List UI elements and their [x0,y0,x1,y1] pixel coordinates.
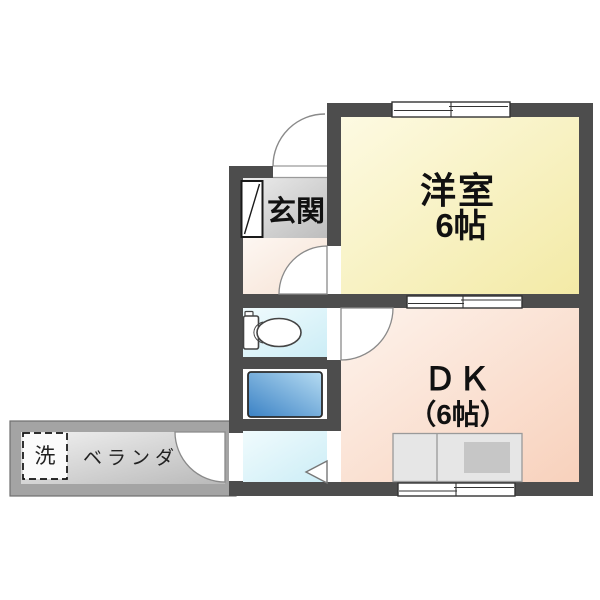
dk-label: ＤＫ [424,361,492,397]
veranda-label: ベランダ [83,447,179,469]
shoe-cabinet [242,181,263,237]
washing-machine-label: 洗 [35,445,56,468]
window-middle [407,296,522,308]
entrance-doorway [273,165,327,178]
entrance-label: 玄関 [267,194,325,228]
dk-size: （6帖） [408,398,508,430]
western-room-doorway [327,246,341,294]
wall-bath-washroom [229,419,341,431]
window-top [392,102,510,117]
kitchen-counter [393,434,522,482]
western-room-size: 6帖 [435,207,486,244]
wall-toilet-bath [229,357,341,369]
floor-plan: 洋室 6帖 ＤＫ （6帖） 玄関 ベランダ 洗 [0,0,600,600]
dk-doorway [327,308,341,360]
window-bottom [398,483,515,496]
veranda-doorway [229,433,243,481]
sink-icon [464,442,510,473]
bathtub [248,372,322,417]
washroom-dk-doorway [327,431,341,482]
floor-plan-drawing: 洋室 6帖 ＤＫ （6帖） 玄関 ベランダ 洗 [0,0,600,600]
western-room-label: 洋室 [420,170,496,211]
